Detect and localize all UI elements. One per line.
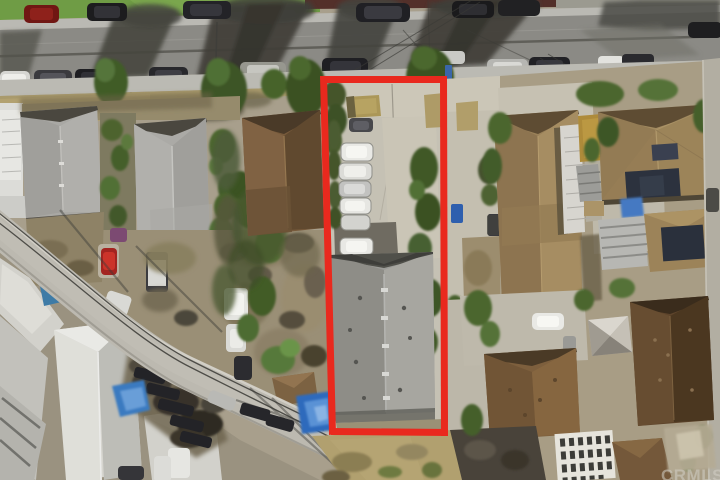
svg-text:CRMLS: CRMLS xyxy=(661,466,720,480)
